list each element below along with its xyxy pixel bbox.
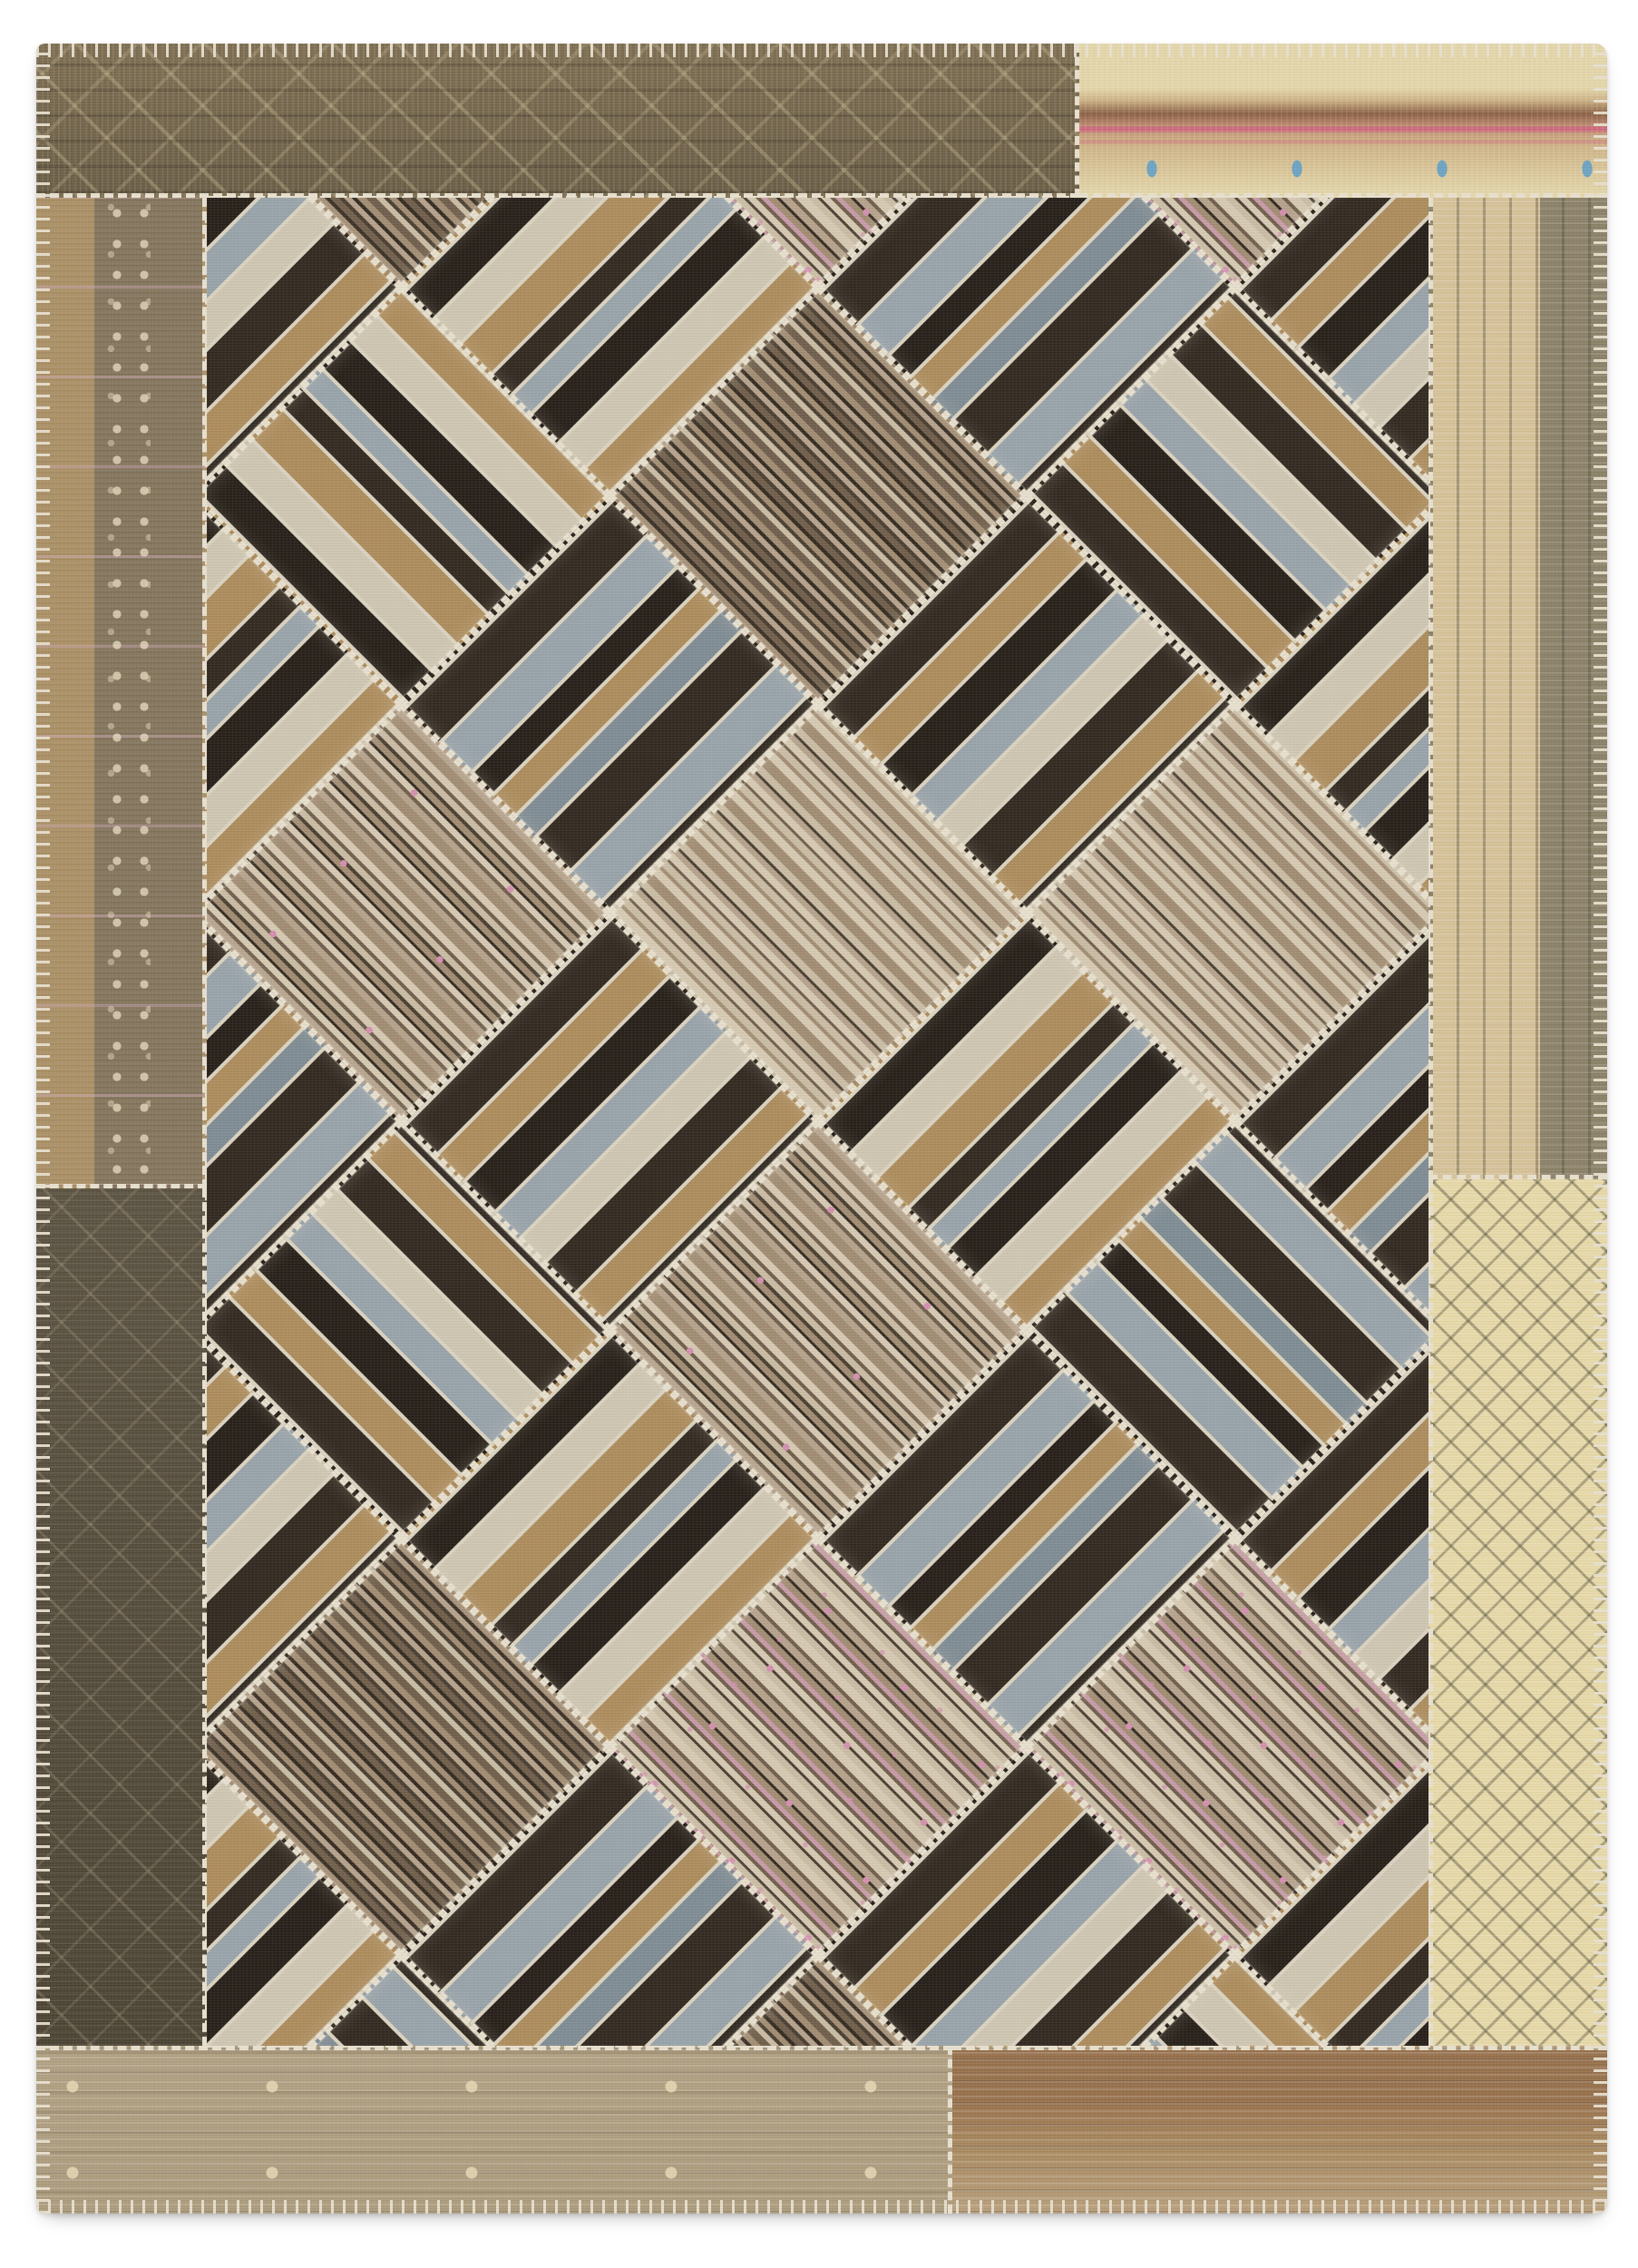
border-patch-right-lower: [1428, 1179, 1607, 2046]
field-grid: [207, 198, 1428, 2046]
blue-motif-row: [1079, 150, 1607, 188]
border-patch-right-upper: [1428, 198, 1607, 1179]
border-patch-left-upper: [36, 198, 207, 1188]
border-patch-top-right: [1079, 44, 1607, 198]
border-patch-bottom-right: [952, 2046, 1607, 2214]
border-patch-left-lower: [36, 1188, 207, 2046]
border-patch-top-left: [36, 44, 1079, 198]
border-patch-bottom-left: [36, 2046, 952, 2214]
patchwork-rug: [36, 44, 1607, 2214]
photo-background: [0, 0, 1638, 2268]
field: [207, 198, 1428, 2046]
embroidery-motif-column: [103, 198, 151, 1184]
